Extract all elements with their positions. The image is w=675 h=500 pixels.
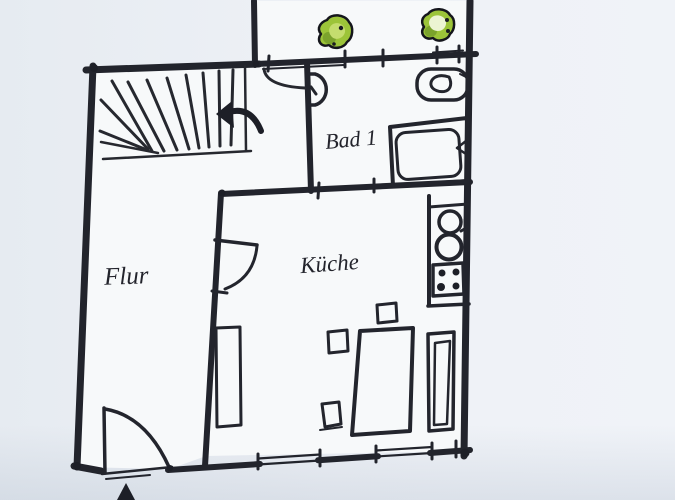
svg-text:Bad 1: Bad 1 [324,125,378,154]
svg-text:Flur: Flur [103,262,150,291]
svg-text:Küche: Küche [298,249,359,278]
